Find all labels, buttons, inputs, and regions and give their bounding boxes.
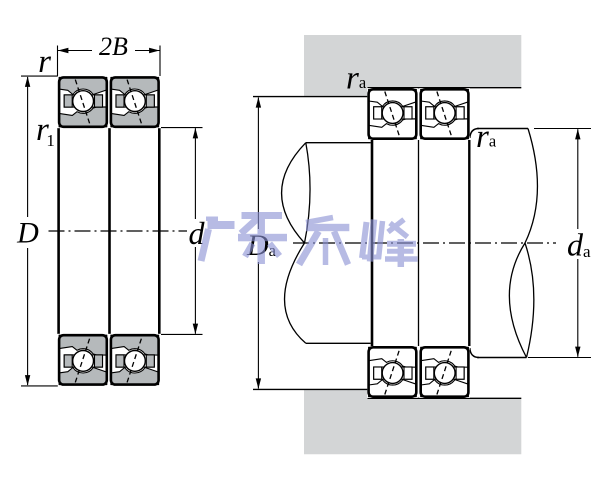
svg-text:2B: 2B <box>99 32 128 61</box>
svg-text:D: D <box>16 217 39 250</box>
svg-text:r: r <box>38 44 51 80</box>
